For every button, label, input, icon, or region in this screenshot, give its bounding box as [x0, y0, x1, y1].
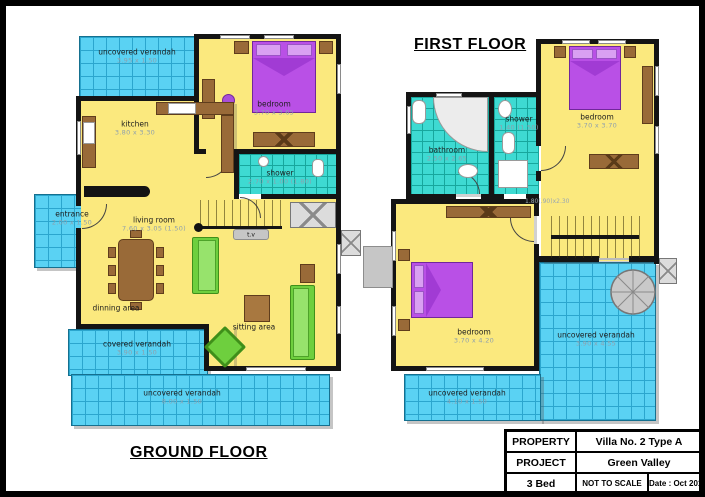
side-table-symbol [398, 319, 410, 331]
room-label: bedroom 3.70 x 3.65 [254, 99, 294, 117]
dining-table-symbol [118, 239, 154, 301]
room-label: bedroom 3.70 x 3.70 [577, 112, 617, 130]
wall-segment [489, 92, 494, 199]
date-value: Date : Oct 2011 [649, 474, 705, 493]
toilet-symbol [412, 100, 426, 124]
ground-floor-title: GROUND FLOOR [130, 444, 268, 462]
shower-drain-symbol [258, 156, 269, 167]
room-dims: 3.70 x 3.65 [254, 109, 294, 117]
wall-segment [391, 199, 539, 204]
side-table-symbol [319, 41, 333, 54]
tv-label: t.v [247, 232, 255, 239]
pillow-symbol [414, 291, 424, 314]
room-name: covered verandah [103, 339, 171, 348]
room-label: bathroom 2.50 x 2.65 [427, 145, 467, 163]
pillow-symbol [414, 265, 424, 288]
window-symbol [337, 64, 341, 94]
room-name: living room [122, 215, 186, 224]
sink-symbol [83, 122, 95, 144]
room-label: dinning area [92, 303, 139, 312]
blanket-fold [253, 58, 315, 76]
chair-symbol [156, 265, 164, 276]
window-symbol [407, 106, 411, 134]
title-block-row: 3 Bed NOT TO SCALE Date : Oct 2011 [507, 474, 701, 493]
room-label: covered verandah 3.90 x 1.50 [103, 339, 171, 357]
wall-segment-curved [84, 186, 150, 197]
room-dims: 3.80 x 3.30 [115, 129, 155, 137]
room-label: uncovered verandah 3.90 x 4.55 [557, 330, 635, 348]
wall-segment [534, 244, 539, 371]
room-name: uncovered verandah [98, 47, 176, 56]
room-label: entrance 2.00 x 1.50 [52, 209, 92, 227]
wall-segment [76, 96, 199, 101]
beds-value: 3 Bed [507, 474, 577, 493]
wall-segment [234, 194, 239, 199]
room-dims: 2.00 x 1.50 [52, 219, 92, 227]
scale-note: NOT TO SCALE [577, 474, 649, 493]
gf-uncovered-verandah-top-area [79, 36, 196, 100]
room-dims: 2.70 x 1.00 (1.80) [248, 178, 312, 186]
room-dims: 8.00 x 1.50 [143, 398, 221, 406]
room-name: bedroom [454, 327, 494, 336]
blanket-fold [426, 263, 441, 317]
wall-segment [261, 194, 341, 199]
stove-symbol [168, 103, 196, 114]
kitchen-peninsula [221, 115, 234, 173]
wall-segment [76, 228, 81, 329]
room-label: shower 1.40 (1.50) [499, 114, 538, 132]
sofa-seat [293, 288, 309, 357]
property-value: Villa No. 2 Type A [577, 432, 701, 451]
side-table-symbol [624, 46, 636, 58]
first-floor-title: FIRST FLOOR [414, 36, 526, 54]
room-dims: 3.90 x 1.50 [103, 349, 171, 357]
room-dims: 2.50 x 2.65 [427, 155, 467, 163]
room-label: uncovered verandah 8.00 x 1.50 [143, 388, 221, 406]
pillow-symbol [572, 49, 593, 59]
room-name: sitting area [233, 322, 276, 331]
window-symbol [77, 121, 81, 155]
chair-symbol [156, 283, 164, 294]
room-label: uncovered verandah 3.95 x 1.50 [98, 47, 176, 65]
exterior-unit-symbol [659, 258, 677, 284]
property-label: PROPERTY [507, 432, 577, 451]
room-dims: 7.60 x 3.05 (1.50) [122, 225, 186, 233]
window-symbol [264, 35, 294, 39]
sink-symbol [458, 164, 478, 178]
toilet-symbol [312, 159, 324, 177]
window-symbol [337, 306, 341, 334]
dresser-symbol [642, 66, 653, 124]
room-dims: 3.70 x 4.20 [454, 337, 494, 345]
chair-symbol [108, 283, 116, 294]
wall-segment [76, 324, 209, 329]
room-dims: 4.10 x 1.50 [428, 398, 506, 406]
room-name: entrance [52, 209, 92, 218]
room-name: shower [499, 114, 538, 123]
room-label: bedroom 3.70 x 4.20 [454, 327, 494, 345]
floor-plan-sheet: t.v uncovered verandah 3.95 x 1.50 bedro… [0, 0, 705, 497]
room-name: kitchen [115, 119, 155, 128]
room-name: bedroom [254, 99, 294, 108]
sofa-seat [198, 240, 216, 291]
newel-post [194, 223, 203, 232]
chair-symbol [108, 265, 116, 276]
window-symbol [655, 126, 659, 154]
room-dims: 3.70 x 3.70 [577, 122, 617, 130]
understair-closet [290, 202, 336, 228]
room-label: shower 2.70 x 1.00 (1.80) [248, 168, 312, 186]
wall-segment [194, 34, 199, 154]
spiral-staircase-symbol [609, 268, 657, 316]
room-dims: 3.95 x 1.50 [98, 57, 176, 65]
exterior-unit-symbol [341, 230, 361, 256]
window-symbol [426, 367, 484, 371]
window-symbol [246, 367, 306, 371]
exterior-ledge-symbol [363, 246, 393, 288]
staircase-symbol [200, 200, 282, 228]
room-name: uncovered verandah [143, 388, 221, 397]
wall-segment [194, 149, 206, 154]
pillow-symbol [256, 44, 281, 56]
stair-rail [551, 235, 639, 239]
window-symbol [220, 35, 250, 39]
room-label: kitchen 3.80 x 3.30 [115, 119, 155, 137]
pillow-symbol [287, 44, 312, 56]
stair-dimension-note: 1.80(.90)x2.30 [525, 198, 570, 205]
wardrobe-symbol [589, 154, 639, 169]
side-table-symbol [398, 249, 410, 261]
sliding-door-symbol [599, 258, 629, 260]
room-label: uncovered verandah 4.10 x 1.50 [428, 388, 506, 406]
coffee-table-symbol [244, 295, 270, 322]
blanket-fold [570, 61, 620, 76]
window-symbol [392, 306, 396, 336]
window-symbol [598, 40, 626, 44]
wall-segment [536, 171, 541, 181]
room-name: uncovered verandah [428, 388, 506, 397]
room-dims: 1.40 (1.50) [499, 124, 538, 132]
wardrobe-symbol [446, 206, 531, 218]
side-table-symbol [234, 41, 249, 54]
chair-symbol [156, 247, 164, 258]
room-name: bedroom [577, 112, 617, 121]
side-table-symbol [554, 46, 566, 58]
shower-tray-symbol [498, 160, 528, 188]
title-block-row: PROJECT Green Valley [507, 453, 701, 474]
toilet-symbol [502, 132, 515, 154]
room-label: sitting area [233, 322, 276, 331]
wall-segment [231, 149, 341, 154]
window-symbol [655, 66, 659, 96]
pillow-symbol [596, 49, 617, 59]
room-label: living room 7.60 x 3.05 (1.50) [122, 215, 186, 233]
window-symbol [562, 40, 590, 44]
side-table-symbol [300, 264, 315, 283]
room-name: shower [248, 168, 312, 177]
wall-segment [234, 149, 239, 199]
room-name: dinning area [92, 303, 139, 312]
project-value: Green Valley [577, 453, 701, 472]
room-dims: 3.90 x 4.55 [557, 340, 635, 348]
title-block: PROPERTY Villa No. 2 Type A PROJECT Gree… [504, 429, 704, 496]
room-name: uncovered verandah [557, 330, 635, 339]
project-label: PROJECT [507, 453, 577, 472]
room-name: bathroom [427, 145, 467, 154]
title-block-row: PROPERTY Villa No. 2 Type A [507, 432, 701, 453]
wardrobe-symbol [253, 132, 315, 147]
chair-symbol [108, 247, 116, 258]
